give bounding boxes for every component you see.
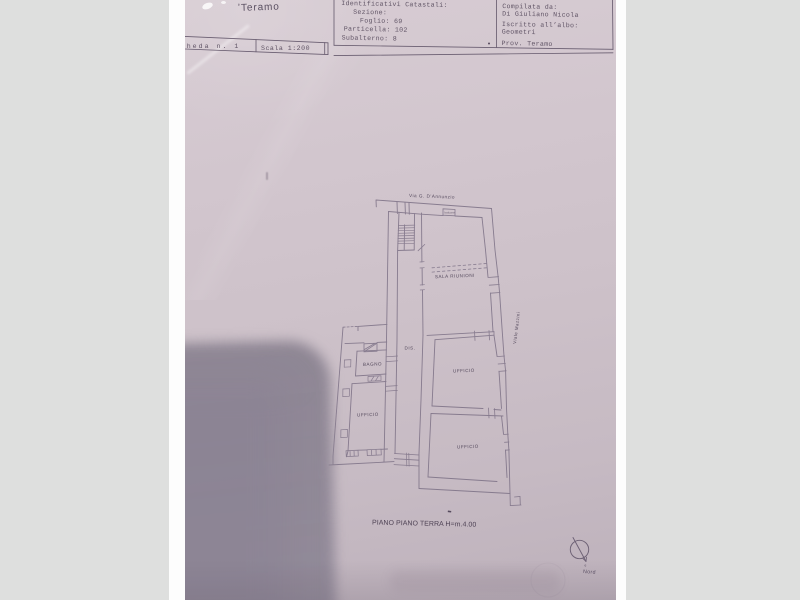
svg-text:Scheda n. 1: Scheda n. 1 xyxy=(185,43,240,50)
svg-text:balcone: balcone xyxy=(445,211,456,215)
svg-text:DIS.: DIS. xyxy=(405,346,416,351)
svg-text:Foglio: 69: Foglio: 69 xyxy=(360,17,403,25)
svg-text:Viale Mazzini: Viale Mazzini xyxy=(512,311,521,344)
svg-text:Di Giuliano Nicola: Di Giuliano Nicola xyxy=(502,10,579,18)
svg-text:PIANO PIANO TERRA H=m.4.00: PIANO PIANO TERRA H=m.4.00 xyxy=(372,520,476,529)
svg-text:Sezione:: Sezione: xyxy=(353,9,387,17)
svg-text:Geometri: Geometri xyxy=(502,28,536,36)
svg-text:UFFICIO: UFFICIO xyxy=(457,444,479,450)
svg-text:SALA RIUNIONI: SALA RIUNIONI xyxy=(435,273,475,279)
svg-text:UFFICIO: UFFICIO xyxy=(453,368,475,374)
svg-text:Via G. D’Annunzio: Via G. D’Annunzio xyxy=(409,193,455,200)
svg-text:Particella: 102: Particella: 102 xyxy=(344,26,408,34)
svg-text:Identificativi Catastali:: Identificativi Catastali: xyxy=(341,0,448,9)
svg-text:UFFICIO: UFFICIO xyxy=(357,412,379,418)
svg-text:ʼTeramo: ʼTeramo xyxy=(238,2,280,14)
svg-text:Subalterno: 8: Subalterno: 8 xyxy=(342,35,397,43)
svg-text:Scala 1:200: Scala 1:200 xyxy=(261,45,310,52)
svg-text:BAGNO: BAGNO xyxy=(363,361,382,367)
svg-text:Prov. Teramo: Prov. Teramo xyxy=(502,40,553,48)
